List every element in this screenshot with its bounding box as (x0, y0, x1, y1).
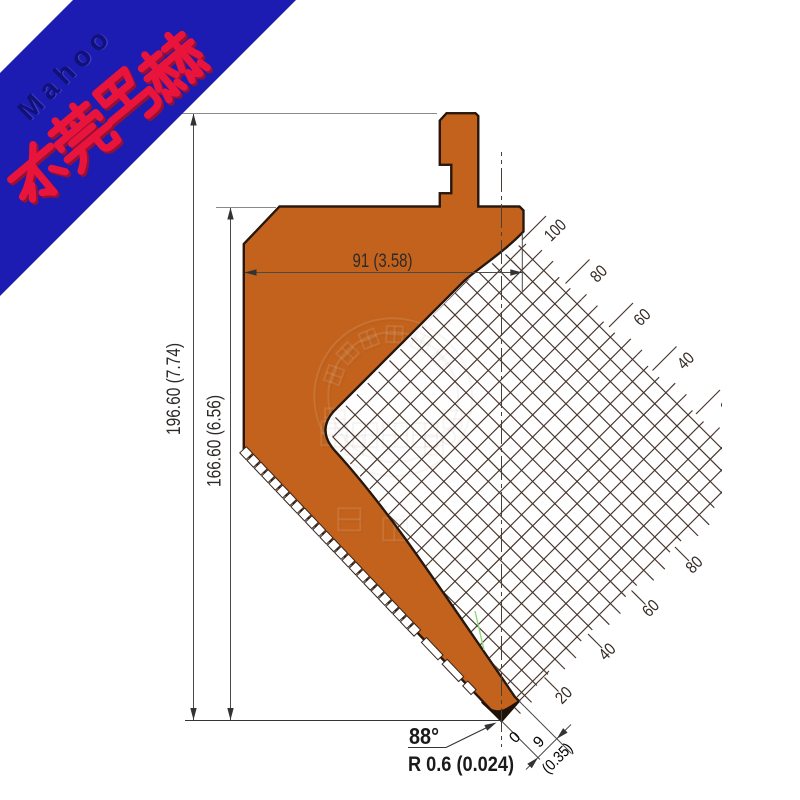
svg-text:R 0.6 (0.024): R 0.6 (0.024) (408, 753, 514, 776)
svg-text:91 (3.58): 91 (3.58) (353, 251, 413, 272)
svg-text:166.60 (6.56): 166.60 (6.56) (204, 395, 226, 487)
svg-text:196.60 (7.74): 196.60 (7.74) (163, 343, 185, 435)
svg-text:88°: 88° (409, 723, 439, 749)
